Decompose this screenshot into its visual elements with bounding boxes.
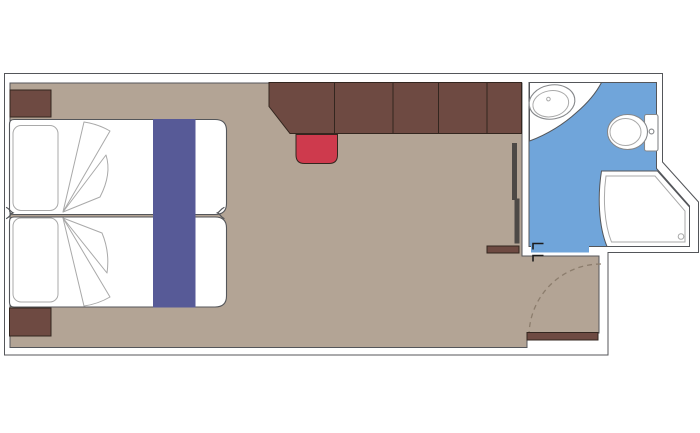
nightstand-bottom (10, 308, 52, 336)
wardrobe-units (269, 83, 522, 134)
bed-runner (153, 119, 196, 308)
nightstand-top (10, 90, 51, 117)
floor-plan-page (0, 0, 700, 433)
pillow-upper (13, 126, 58, 211)
bathroom-doorway (531, 246, 589, 253)
stool (296, 135, 338, 164)
wardrobe-body (269, 83, 522, 134)
floor-plan (0, 0, 700, 433)
toilet-icon (608, 115, 659, 152)
double-bed (7, 119, 227, 308)
entry-door-leaf (527, 333, 598, 341)
pillow-lower (13, 218, 58, 302)
entry-shelf (487, 246, 519, 253)
